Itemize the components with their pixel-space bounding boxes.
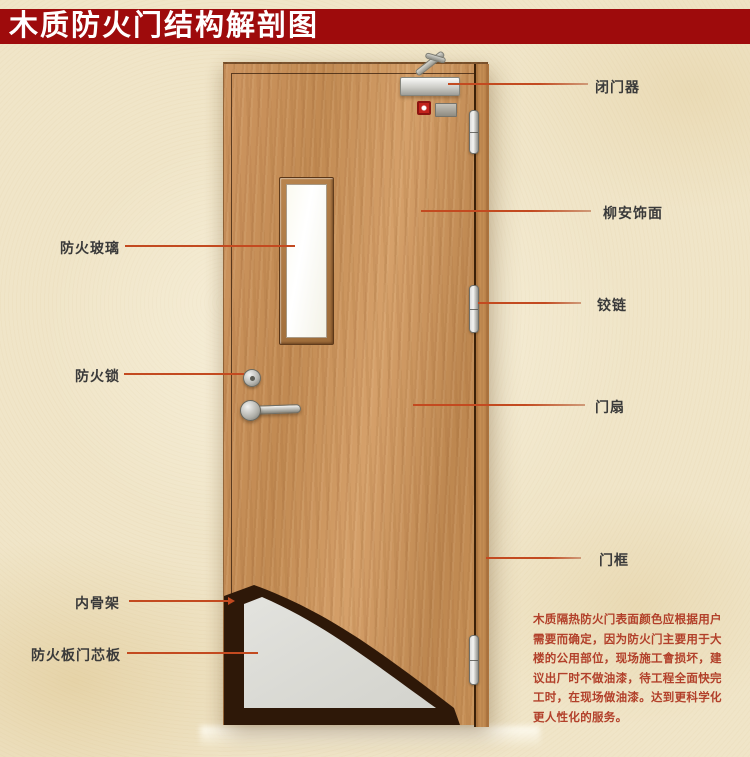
cutaway-section <box>224 582 489 725</box>
leader-line-door-closer <box>448 83 588 85</box>
label-lauan-veneer: 柳安饰面 <box>603 203 663 223</box>
hinge-top-icon <box>469 110 479 154</box>
leader-line-fire-glass <box>125 245 295 247</box>
hinge-middle-icon <box>469 285 479 333</box>
label-inner-skeleton: 内骨架 <box>25 593 120 613</box>
label-fire-glass: 防火玻璃 <box>25 238 120 258</box>
leader-line-door-leaf <box>413 404 585 406</box>
page-background: 木质防火门结构解剖图 <box>0 0 750 757</box>
label-fire-lock: 防火锁 <box>25 366 120 386</box>
core-board-sheen <box>244 597 436 708</box>
label-door-closer: 闭门器 <box>595 77 640 97</box>
hinge-bottom-icon <box>469 635 479 685</box>
door-handle-rosette-icon <box>240 400 261 421</box>
glass-pane <box>286 184 327 338</box>
leader-line-door-frame <box>486 557 581 559</box>
label-door-frame: 门框 <box>599 550 629 570</box>
leader-line-hinge <box>478 302 581 304</box>
label-hinge: 铰链 <box>597 295 627 315</box>
closer-bracket <box>435 103 457 117</box>
note-paragraph: 木质隔热防火门表面颜色应根据用户 需要而确定，因为防火门主要用于大 楼的公用部位… <box>533 611 723 729</box>
label-door-leaf: 门扇 <box>595 397 625 417</box>
alarm-indicator-icon <box>417 101 431 115</box>
leader-line-fire-lock <box>124 373 244 375</box>
door-closer-body <box>400 77 460 96</box>
page-title: 木质防火门结构解剖图 <box>0 9 319 44</box>
floor-highlight <box>200 726 540 748</box>
fire-glass-window <box>279 177 334 345</box>
leader-line-core-board <box>127 652 258 654</box>
leader-line-inner-skeleton <box>129 600 229 602</box>
leader-line-lauan-veneer <box>421 210 591 212</box>
lock-cylinder-icon <box>243 369 261 387</box>
title-bar: 木质防火门结构解剖图 <box>0 9 750 44</box>
door-illustration <box>223 62 488 725</box>
label-core-board: 防火板门芯板 <box>20 645 121 665</box>
